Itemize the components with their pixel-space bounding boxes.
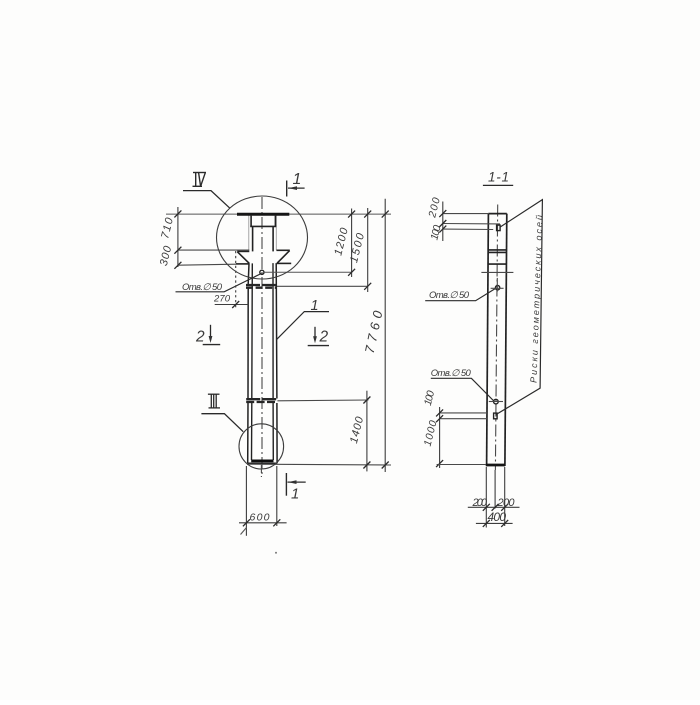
svg-text:200: 200 (497, 497, 516, 509)
svg-text:1: 1 (293, 171, 302, 188)
svg-text:1: 1 (311, 298, 319, 314)
svg-text:Отв.∅ 50: Отв.∅ 50 (431, 368, 472, 379)
svg-text:1-1: 1-1 (488, 170, 509, 185)
svg-text:Отв.∅ 50: Отв.∅ 50 (429, 290, 470, 301)
svg-text:1: 1 (291, 486, 299, 503)
svg-text:2: 2 (319, 329, 329, 346)
svg-text:600: 600 (250, 512, 270, 524)
svg-text:2: 2 (195, 329, 205, 346)
svg-text:270: 270 (213, 294, 231, 305)
svg-text:200: 200 (472, 497, 488, 509)
svg-text:400: 400 (488, 510, 507, 524)
